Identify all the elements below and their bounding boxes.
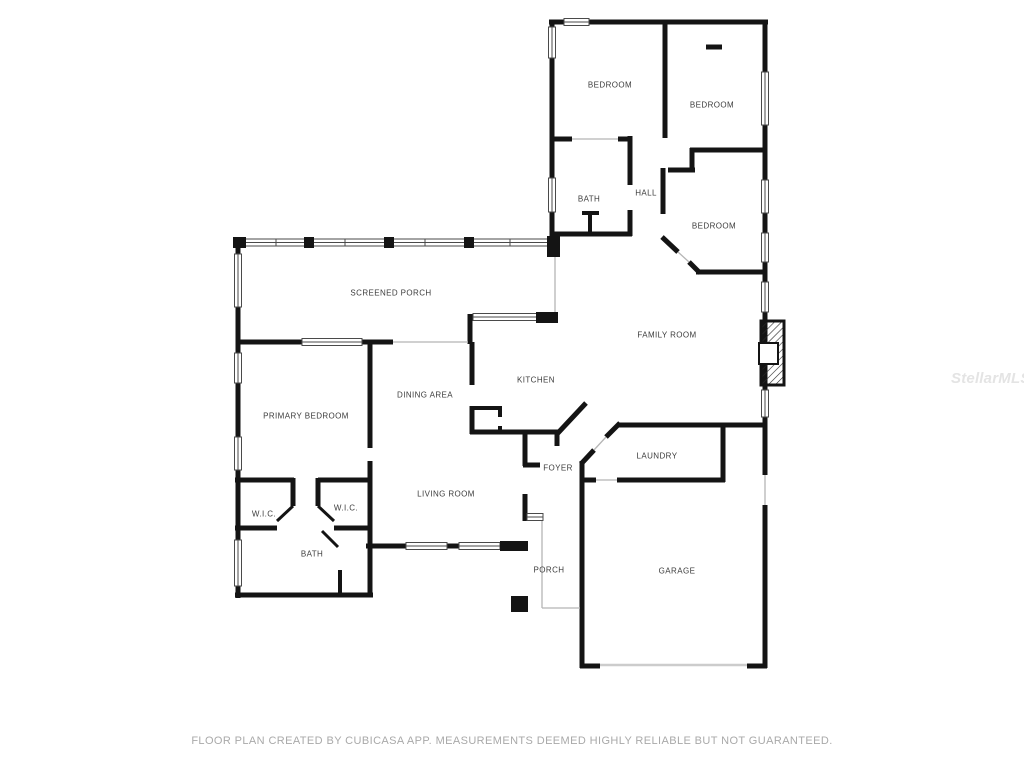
door-leaves-group — [277, 506, 338, 547]
room-label-porch: PORCH — [534, 566, 565, 575]
room-label-primary-bedroom: PRIMARY BEDROOM — [263, 412, 349, 421]
room-label-bedroom-1: BEDROOM — [588, 81, 632, 90]
room-label-hall: HALL — [635, 189, 657, 198]
room-label-foyer: FOYER — [543, 464, 573, 473]
door-opening — [678, 252, 689, 262]
wall-post — [233, 237, 246, 248]
mls-watermark: StellarMLS — [951, 370, 1024, 387]
door-leaf — [318, 506, 334, 521]
wall-post — [500, 541, 528, 551]
wall-post — [304, 237, 314, 248]
room-label-kitchen: KITCHEN — [517, 376, 555, 385]
room-label-laundry: LAUNDRY — [637, 452, 678, 461]
room-label-bath-hall: BATH — [578, 195, 600, 204]
wall-post — [384, 237, 394, 248]
door-leaf — [322, 531, 338, 547]
wall-post — [536, 312, 558, 323]
room-label-wic-left: W.I.C. — [252, 510, 276, 519]
windows-group — [235, 19, 769, 587]
room-label-garage: GARAGE — [659, 567, 696, 576]
wall-post — [464, 237, 474, 248]
wall-post — [547, 236, 560, 257]
room-label-bedroom-2: BEDROOM — [690, 101, 734, 110]
wall-segment — [662, 237, 678, 252]
floor-plan-page: { "page": { "background": "#ffffff", "fo… — [0, 0, 1024, 768]
fireplace-part — [759, 343, 778, 364]
room-label-wic-right: W.I.C. — [334, 504, 358, 513]
fireplace — [759, 321, 784, 385]
room-label-bath-primary: BATH — [301, 550, 323, 559]
room-label-family-room: FAMILY ROOM — [637, 331, 696, 340]
room-label-dining-area: DINING AREA — [397, 391, 453, 400]
wall-segment — [557, 403, 586, 434]
room-labels-group: BEDROOMBEDROOMBATHHALLBEDROOMSCREENED PO… — [252, 81, 736, 576]
door-opening — [594, 437, 606, 450]
disclaimer-text: FLOOR PLAN CREATED BY CUBICASA APP. MEAS… — [0, 735, 1024, 747]
door-openings-group — [393, 139, 765, 665]
room-label-screened-porch: SCREENED PORCH — [350, 289, 431, 298]
room-label-living-room: LIVING ROOM — [417, 490, 475, 499]
door-leaf — [277, 506, 293, 521]
porch-post — [511, 596, 528, 612]
room-label-bedroom-3: BEDROOM — [692, 222, 736, 231]
floor-plan-drawing: BEDROOMBEDROOMBATHHALLBEDROOMSCREENED PO… — [0, 0, 1024, 768]
